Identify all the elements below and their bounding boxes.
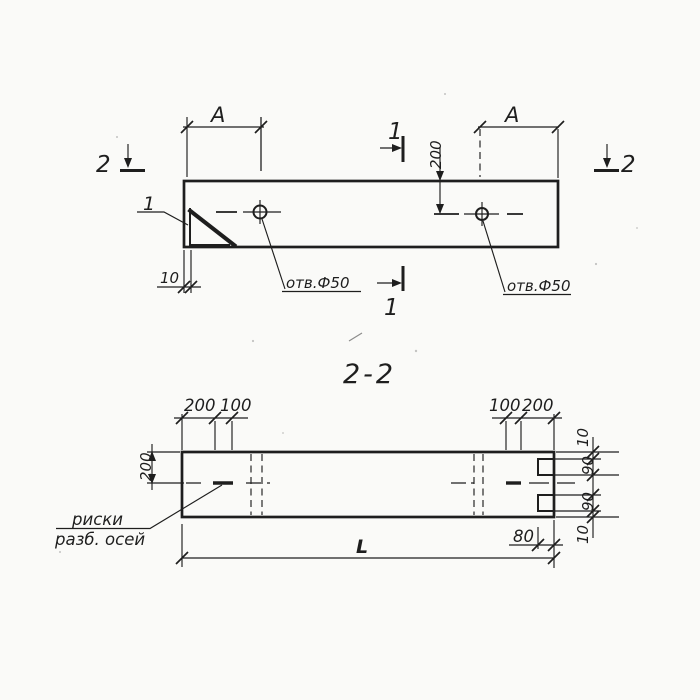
dim-a-left-label: A <box>209 103 225 127</box>
beam-outline-plan <box>184 181 558 247</box>
notch-bottom <box>538 495 554 511</box>
drawing-sheet: 1 A A 200 <box>0 0 700 700</box>
section-mark-1-top-label: 1 <box>388 119 403 145</box>
section-view-2-2: 2-2 200 200 100 <box>54 359 619 568</box>
section-mark-1-top-arrowhead <box>392 144 402 152</box>
stray-mark <box>349 333 362 341</box>
hidden-hole-edges <box>251 454 483 515</box>
dim-a-left: A <box>181 103 267 177</box>
speck <box>595 263 597 265</box>
dim-200-label: 200 <box>427 140 445 169</box>
hole-label-left-leader <box>262 219 285 289</box>
section-mark-1-bottom-label: 1 <box>384 295 399 321</box>
dim-a-right: A <box>474 103 564 178</box>
detail-callout-1: 1 <box>137 193 188 225</box>
dims-top-left-200: 200 <box>184 396 216 415</box>
axis-note-line2: разб. осей <box>54 530 145 549</box>
section-mark-1-bottom: 1 <box>377 266 403 321</box>
beam-outline-section <box>182 452 554 517</box>
dims-right-chain-10-top: 10 <box>574 428 592 447</box>
dims-right-chain-90-top: 90 <box>579 456 597 475</box>
hole-label-right-text: отв.Ф50 <box>507 277 571 295</box>
hole-label-right-leader <box>483 221 505 292</box>
scan-artifacts <box>59 93 638 553</box>
section-mark-1-top: 1 <box>380 119 403 162</box>
dims-right-chain-90-bottom: 90 <box>579 492 597 511</box>
hole-right <box>434 202 523 226</box>
technical-drawing: 1 A A 200 <box>0 0 700 700</box>
section-mark-2-left-label: 2 <box>96 152 111 178</box>
dims-top-left-extensions <box>182 414 232 450</box>
section-mark-2-right: 2 <box>594 144 636 178</box>
hole-left-center-vertical <box>260 117 261 224</box>
dims-top-right-100: 100 <box>489 396 521 415</box>
section-mark-2-left: 2 <box>96 144 145 178</box>
speck <box>252 340 254 342</box>
axis-note-line1: риски <box>71 510 123 529</box>
dims-right-chain: 10 90 90 10 <box>554 428 619 544</box>
dim-a-right-label: A <box>503 103 519 127</box>
section-mark-2-left-arrowhead <box>124 158 132 168</box>
speck <box>636 227 638 229</box>
dim-notch-depth-80: 80 <box>509 520 563 568</box>
dims-top-left: 200 100 <box>174 396 252 450</box>
dim-length-L: L <box>176 524 560 567</box>
dim-height-label: 200 <box>137 452 155 481</box>
dim-edge-10: 10 <box>157 250 201 293</box>
dim-L-label: L <box>356 536 368 558</box>
speck <box>444 93 446 95</box>
speck <box>282 432 284 434</box>
corner-detail-triangle <box>189 209 237 247</box>
hole-label-left-text: отв.Ф50 <box>286 274 350 292</box>
speck <box>415 350 417 352</box>
dims-right-chain-10-bottom: 10 <box>574 525 592 544</box>
plan-view: 1 A A 200 <box>96 103 636 321</box>
dim-10-label: 10 <box>160 269 179 287</box>
dim-hole-offset-200: 200 <box>427 140 445 214</box>
dim-80-label: 80 <box>513 527 534 546</box>
hole-left <box>216 117 281 224</box>
speck <box>59 551 61 553</box>
speck <box>116 136 118 138</box>
dim-height-200: 200 <box>137 444 184 490</box>
section-mark-2-right-label: 2 <box>621 152 636 178</box>
dims-top-right: 100 200 <box>489 396 562 450</box>
dims-top-right-200: 200 <box>522 396 554 415</box>
notch-top <box>538 459 554 475</box>
triangle-hypotenuse <box>189 210 237 247</box>
dims-top-left-100: 100 <box>220 396 252 415</box>
hole-label-left: отв.Ф50 <box>262 219 361 292</box>
section-title: 2-2 <box>343 359 396 390</box>
section-mark-2-right-arrowhead <box>603 158 611 168</box>
dims-top-right-extensions <box>506 414 554 450</box>
section-mark-1-bottom-arrowhead <box>392 279 402 287</box>
